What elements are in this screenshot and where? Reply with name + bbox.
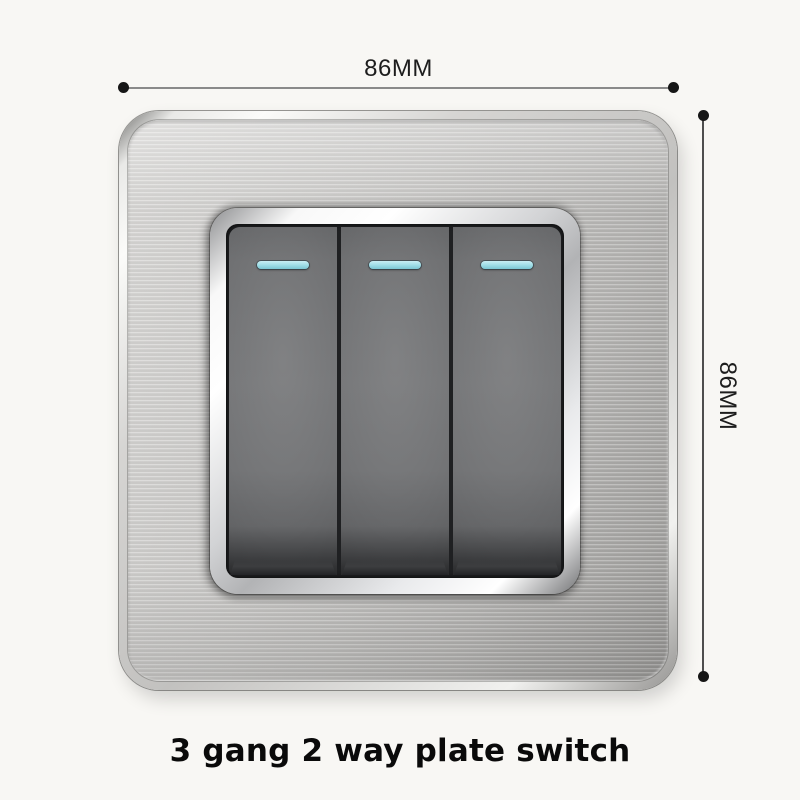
dimension-endpoint-dot — [698, 671, 709, 682]
dimension-width-line — [123, 87, 674, 89]
dimension-width: 86MM — [118, 82, 679, 94]
indicator-strip-gang-3 — [481, 261, 533, 269]
switch-rocker-gang-3 — [453, 227, 561, 575]
dimension-endpoint-dot — [668, 82, 679, 93]
dimension-width-label: 86MM — [118, 56, 679, 82]
dimension-height-label: 86MM — [713, 362, 741, 431]
switch-cavity — [226, 224, 564, 578]
indicator-strip-gang-2 — [369, 261, 421, 269]
product-title: 3 gang 2 way plate switch — [0, 733, 800, 769]
dimension-height-line — [702, 115, 704, 677]
switch-rocker-gang-1 — [229, 227, 337, 575]
indicator-strip-gang-1 — [257, 261, 309, 269]
product-image: 86MM 86MM 3 gang 2 wa — [0, 0, 800, 800]
switch-bezel — [210, 208, 580, 594]
dimension-endpoint-dot — [698, 110, 709, 121]
switch-rocker-gang-2 — [341, 227, 449, 575]
dimension-endpoint-dot — [118, 82, 129, 93]
dimension-height: 86MM — [697, 110, 709, 682]
switch-plate — [119, 111, 677, 690]
